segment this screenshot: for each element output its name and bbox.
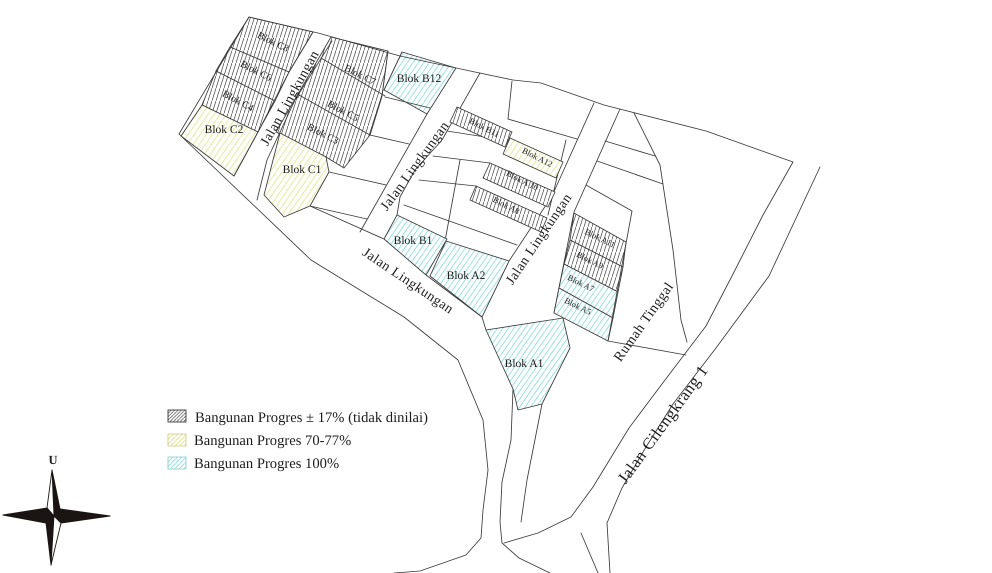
svg-text:Blok C2: Blok C2 xyxy=(205,124,244,136)
svg-text:Blok B1: Blok B1 xyxy=(394,235,433,247)
svg-text:Bangunan Progres 70-77%: Bangunan Progres 70-77% xyxy=(194,433,351,449)
svg-text:U: U xyxy=(48,453,57,467)
svg-text:Blok A2: Blok A2 xyxy=(447,270,486,282)
svg-text:Jalan Lingkungan: Jalan Lingkungan xyxy=(377,118,452,213)
svg-text:Blok A1: Blok A1 xyxy=(505,358,544,370)
svg-text:Blok C1: Blok C1 xyxy=(283,164,322,176)
svg-text:Bangunan Progres ± 17% (tidak: Bangunan Progres ± 17% (tidak dinilai) xyxy=(195,410,428,426)
svg-text:Bangunan Progres 100%: Bangunan Progres 100% xyxy=(194,456,339,472)
svg-text:Blok B12: Blok B12 xyxy=(397,73,442,85)
svg-text:Jalan Cilengkrang 1: Jalan Cilengkrang 1 xyxy=(614,361,713,487)
